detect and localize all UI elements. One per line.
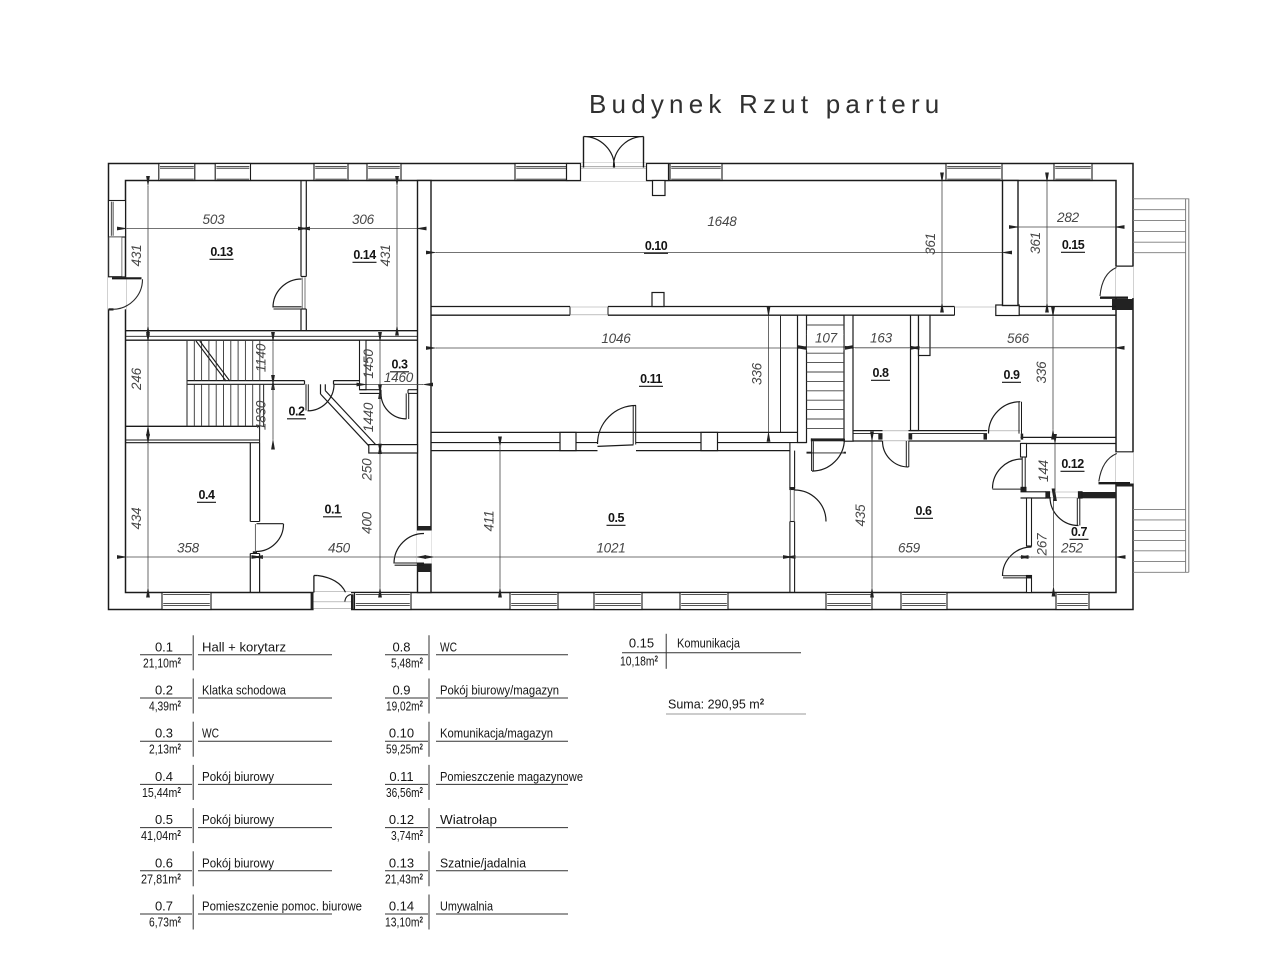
svg-text:0.7: 0.7	[155, 899, 173, 914]
svg-text:267: 267	[1035, 533, 1050, 557]
svg-text:0.6: 0.6	[155, 855, 173, 870]
svg-text:13,10m2: 13,10m2	[385, 915, 423, 930]
svg-text:282: 282	[1056, 210, 1080, 225]
svg-text:246: 246	[129, 367, 144, 391]
svg-text:361: 361	[1028, 232, 1043, 254]
svg-text:0.6: 0.6	[916, 504, 932, 518]
svg-text:336: 336	[750, 362, 765, 385]
svg-text:Pokój biurowy: Pokój biurowy	[202, 770, 275, 784]
svg-text:0.8: 0.8	[392, 639, 410, 654]
svg-text:2,13m2: 2,13m2	[149, 742, 181, 757]
svg-text:1440: 1440	[361, 402, 376, 432]
svg-text:1830: 1830	[254, 400, 269, 430]
svg-text:21,10m2: 21,10m2	[143, 655, 181, 670]
svg-text:431: 431	[129, 245, 144, 267]
svg-text:WC: WC	[440, 640, 457, 654]
svg-text:0.11: 0.11	[389, 769, 413, 784]
svg-text:503: 503	[203, 212, 226, 227]
svg-text:361: 361	[923, 233, 938, 255]
svg-text:0.8: 0.8	[873, 366, 889, 380]
svg-text:1450: 1450	[361, 349, 376, 379]
svg-text:Pomieszczenie pomoc. biurowe: Pomieszczenie pomoc. biurowe	[202, 900, 362, 914]
svg-text:0.9: 0.9	[1004, 368, 1020, 382]
svg-text:59,25m2: 59,25m2	[386, 742, 423, 757]
svg-text:144: 144	[1036, 460, 1051, 482]
svg-text:411: 411	[482, 511, 497, 532]
svg-text:163: 163	[870, 331, 893, 346]
svg-text:Pokój biurowy/magazyn: Pokój biurowy/magazyn	[440, 684, 559, 698]
svg-text:Pomieszczenie magazynowe: Pomieszczenie magazynowe	[440, 770, 583, 784]
svg-text:0.15: 0.15	[629, 636, 654, 651]
svg-text:Suma: 290,95 m2: Suma: 290,95 m2	[668, 698, 765, 712]
svg-text:Pokój biurowy: Pokój biurowy	[202, 813, 275, 827]
svg-text:1648: 1648	[707, 214, 737, 229]
svg-text:0.14: 0.14	[353, 248, 376, 262]
svg-text:Komunikacja: Komunikacja	[677, 637, 740, 651]
svg-text:0.5: 0.5	[155, 812, 173, 827]
svg-text:Pokój biurowy: Pokój biurowy	[202, 856, 275, 870]
svg-text:Szatnie/jadalnia: Szatnie/jadalnia	[440, 856, 526, 870]
svg-text:0.15: 0.15	[1062, 238, 1085, 252]
svg-text:0.11: 0.11	[640, 372, 662, 386]
svg-text:358: 358	[177, 541, 200, 556]
svg-text:566: 566	[1007, 331, 1030, 346]
svg-text:107: 107	[815, 331, 838, 346]
svg-text:WC: WC	[202, 727, 219, 741]
svg-text:10,18m2: 10,18m2	[620, 654, 658, 669]
svg-text:434: 434	[129, 508, 144, 530]
svg-text:0.2: 0.2	[289, 405, 305, 419]
svg-text:435: 435	[853, 504, 868, 527]
svg-text:0.2: 0.2	[155, 683, 173, 698]
svg-text:1046: 1046	[601, 331, 631, 346]
svg-text:0.13: 0.13	[389, 855, 414, 870]
svg-text:6,73m2: 6,73m2	[149, 915, 181, 930]
svg-text:Komunikacja/magazyn: Komunikacja/magazyn	[440, 727, 553, 741]
svg-text:19,02m2: 19,02m2	[386, 699, 423, 714]
svg-text:0.14: 0.14	[389, 899, 414, 914]
svg-text:1140: 1140	[254, 343, 269, 372]
svg-text:21,43m2: 21,43m2	[385, 871, 423, 886]
svg-text:4,39m2: 4,39m2	[149, 699, 181, 714]
svg-text:0.1: 0.1	[325, 503, 341, 517]
svg-text:0.3: 0.3	[155, 726, 173, 741]
svg-text:0.10: 0.10	[389, 726, 414, 741]
svg-text:400: 400	[360, 511, 375, 534]
svg-text:431: 431	[378, 245, 393, 267]
svg-text:450: 450	[328, 541, 351, 556]
svg-text:Hall + korytarz: Hall + korytarz	[202, 640, 286, 654]
svg-text:27,81m2: 27,81m2	[141, 871, 181, 886]
svg-text:0.4: 0.4	[199, 488, 215, 502]
svg-text:336: 336	[1034, 361, 1049, 384]
svg-text:0.3: 0.3	[392, 358, 408, 372]
svg-text:250: 250	[360, 458, 375, 482]
svg-text:Umywalnia: Umywalnia	[440, 900, 493, 914]
svg-text:1021: 1021	[596, 541, 625, 556]
svg-text:0.9: 0.9	[392, 683, 410, 698]
svg-text:0.1: 0.1	[155, 639, 173, 654]
svg-text:0.13: 0.13	[210, 245, 233, 259]
svg-text:3,74m2: 3,74m2	[391, 828, 423, 843]
svg-text:0.5: 0.5	[608, 511, 624, 525]
svg-text:0.12: 0.12	[389, 812, 414, 827]
svg-text:0.4: 0.4	[155, 769, 173, 784]
svg-text:306: 306	[352, 212, 375, 227]
svg-text:0.7: 0.7	[1071, 525, 1087, 539]
svg-text:Budynek Rzut parteru: Budynek Rzut parteru	[589, 89, 944, 119]
svg-text:36,56m2: 36,56m2	[386, 785, 423, 800]
svg-text:5,48m2: 5,48m2	[391, 655, 423, 670]
svg-text:252: 252	[1060, 541, 1084, 556]
svg-text:0.12: 0.12	[1061, 457, 1084, 471]
svg-text:15,44m2: 15,44m2	[142, 785, 181, 800]
svg-text:Wiatrołap: Wiatrołap	[440, 813, 497, 827]
svg-text:659: 659	[898, 541, 921, 556]
svg-text:Klatka schodowa: Klatka schodowa	[202, 684, 286, 698]
svg-text:0.10: 0.10	[645, 239, 668, 253]
svg-text:41,04m2: 41,04m2	[141, 828, 181, 843]
